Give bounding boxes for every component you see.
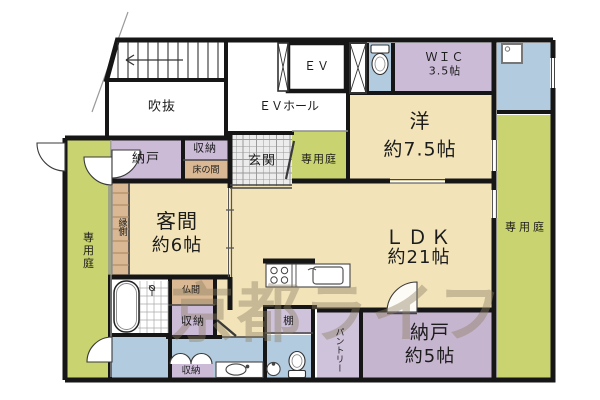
- label-storage-nw: 納戸: [132, 153, 160, 166]
- label-closet-n: 収納: [193, 143, 217, 154]
- label-garden-top: 専用庭: [301, 154, 337, 165]
- label-entrance: 玄関: [248, 155, 276, 168]
- label-guest-area: 約6帖: [152, 237, 202, 255]
- label-wic-area: 3.5帖: [429, 66, 462, 77]
- label-void: 吹抜: [148, 101, 176, 114]
- washbasin-icon: [216, 362, 263, 378]
- round-basin-icon: [267, 362, 280, 375]
- label-butsuma: 仏間: [182, 287, 200, 296]
- bathtub-icon: [114, 281, 168, 333]
- staircase: [118, 42, 218, 78]
- label-garden-left: 専用庭: [83, 232, 94, 271]
- label-western-area: 約7.5帖: [383, 141, 456, 160]
- label-ldk-area: 約21帖: [388, 249, 451, 267]
- toilet-north-icon: [371, 45, 389, 75]
- label-tokonoma: 床の間: [192, 167, 219, 176]
- label-ev-hall: ＥＶホール: [259, 100, 319, 112]
- label-pantry: パントリー: [334, 328, 343, 373]
- utility-sink-icon: [502, 44, 522, 63]
- label-shelf: 棚: [283, 316, 295, 327]
- floor-plan: 京都ライフ 吹抜 ＥＶホール ＥＶ ＷＩＣ 3.5帖 洋 約7.5帖 専用庭 専…: [0, 0, 600, 400]
- label-closet-s: 収納: [181, 366, 200, 376]
- label-guest-name: 客間: [156, 211, 198, 231]
- entrance-door: [286, 141, 294, 179]
- label-storage-se-area: 約5帖: [405, 348, 455, 366]
- label-engawa: 縁側: [117, 218, 126, 236]
- label-closet-mid: 収納: [181, 316, 205, 327]
- label-storage-se-name: 納戸: [410, 324, 450, 343]
- label-elevator: ＥＶ: [304, 60, 330, 72]
- toilet-south-icon: [289, 352, 306, 378]
- label-garden-right: 専用庭: [505, 222, 547, 233]
- stairs-arrow-icon: [126, 55, 183, 65]
- label-wic-name: ＷＩＣ: [425, 51, 464, 63]
- label-western-name: 洋: [410, 111, 431, 131]
- label-ldk-name: ＬＤＫ: [385, 227, 454, 247]
